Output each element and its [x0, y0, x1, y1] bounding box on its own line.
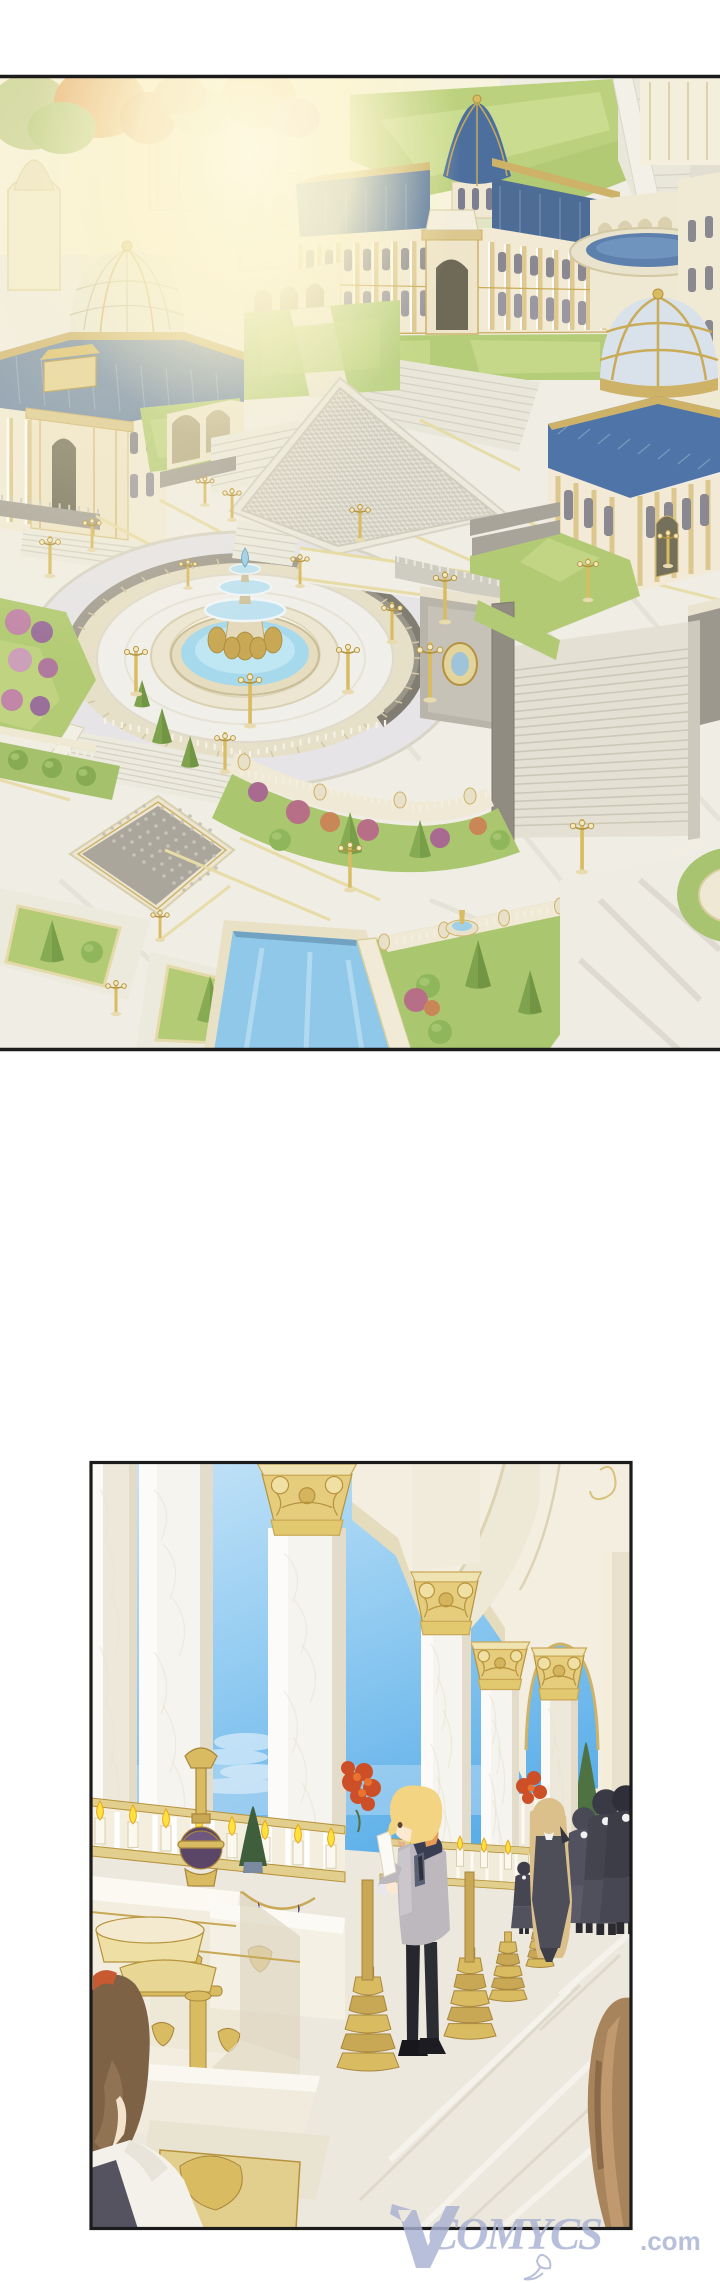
svg-text:COMYCS: COMYCS [428, 2209, 602, 2259]
svg-text:.com: .com [640, 2226, 701, 2256]
